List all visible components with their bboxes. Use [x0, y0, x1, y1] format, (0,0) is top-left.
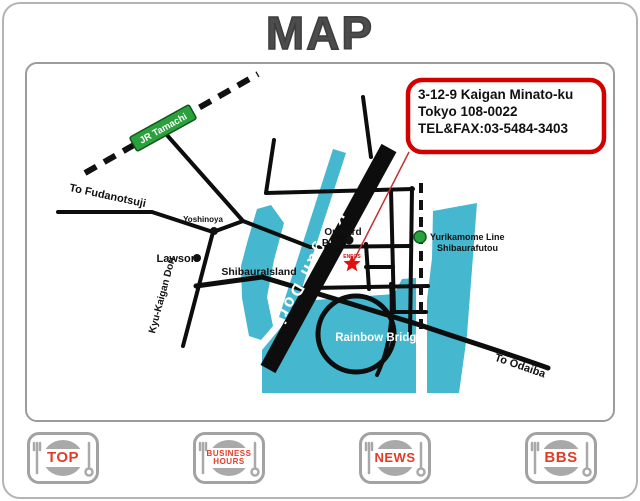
map-graphic: Kaigan Dori Rainbow Bridge JR Tamachi EN… [25, 62, 615, 422]
nav-button-bbs-label: BBS [528, 435, 594, 481]
address-box: 3-12-9 Kaigan Minato-ku Tokyo 108-0022 T… [408, 80, 604, 152]
road-top-spur [363, 97, 371, 157]
nav-button-business-hours-label: BUSINESS HOURS [196, 435, 262, 481]
business-hours-line2: HOURS [213, 458, 244, 466]
page-title: MAP [0, 6, 640, 60]
onward-label: Onward [324, 227, 361, 238]
road-station-access [166, 134, 243, 221]
shibaura-island-label: ShibauraIsland [221, 266, 296, 278]
nav-button-news-label: NEWS [362, 435, 428, 481]
to-fudanotsuji-label: To Fudanotsuji [68, 182, 147, 210]
address-line3: TEL&FAX:03-5484-3403 [418, 121, 569, 136]
yoshinoya-label: Yoshinoya [183, 215, 223, 224]
nav-button-bbs[interactable]: BBS [525, 432, 597, 484]
nav-button-news[interactable]: NEWS [359, 432, 431, 484]
yoshinoya-dot [210, 227, 218, 235]
nav-button-business-hours[interactable]: BUSINESS HOURS [193, 432, 265, 484]
map-panel: Kaigan Dori Rainbow Bridge JR Tamachi EN… [25, 62, 615, 422]
address-line1: 3-12-9 Kaigan Minato-ku [418, 87, 573, 102]
yurikamome-station-dot [414, 231, 426, 243]
pb-label: P.B. [322, 238, 340, 249]
road-block-h2 [311, 286, 428, 288]
yurikamome-label-line1: Yurikamome Line [430, 232, 505, 242]
jr-tamachi-badge: JR Tamachi [129, 105, 196, 152]
road-north-vertical [266, 140, 274, 193]
rainbow-bridge-label: Rainbow Bridge [335, 332, 423, 344]
kyu-kaigan-dori-label: Kyu-Kaigan Dori [147, 256, 178, 335]
eneos-label: ENEOS [343, 254, 361, 260]
nav-button-top-label: TOP [30, 435, 96, 481]
yurikamome-label-line2: Shibaurafutou [437, 243, 498, 253]
nav-button-top[interactable]: TOP [27, 432, 99, 484]
address-line2: Tokyo 108-0022 [418, 104, 518, 119]
